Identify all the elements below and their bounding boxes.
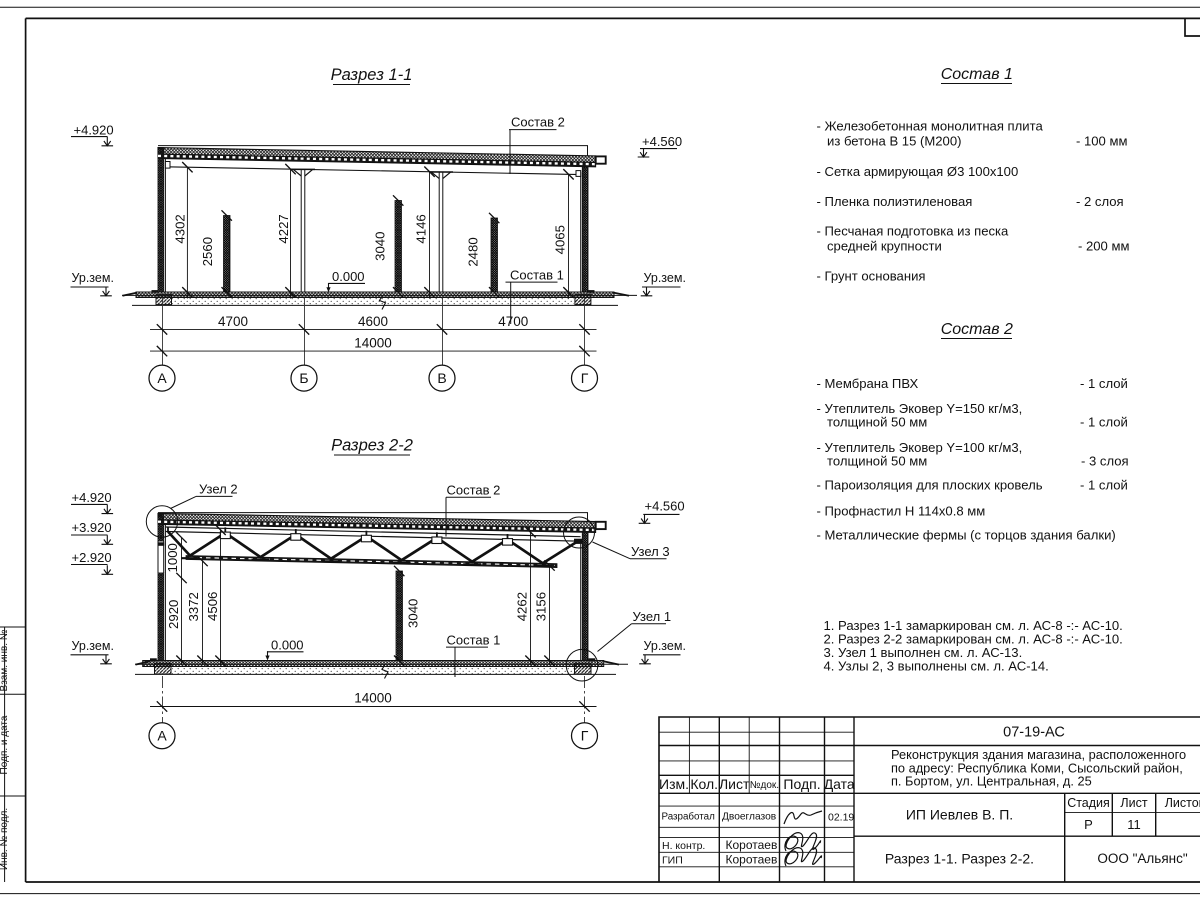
svg-text:- 1 слой: - 1 слой: [1080, 478, 1128, 493]
svg-text:0.000: 0.000: [332, 269, 365, 284]
svg-text:4700: 4700: [218, 314, 248, 329]
svg-text:+4.920: +4.920: [74, 122, 114, 137]
svg-text:3372: 3372: [186, 592, 201, 621]
svg-text:В: В: [437, 370, 446, 386]
svg-text:Изм.: Изм.: [659, 776, 689, 792]
svg-text:4. Узлы 2, 3 выполнены см. л.: 4. Узлы 2, 3 выполнены см. л. АС-14.: [824, 659, 1049, 674]
svg-text:2920: 2920: [166, 600, 181, 629]
svg-text:Состав 2: Состав 2: [447, 482, 501, 497]
svg-text:- Грунт основания: - Грунт основания: [817, 269, 926, 284]
svg-text:14000: 14000: [354, 691, 392, 706]
svg-text:Разрез 1-1. Разрез 2-2.: Разрез 1-1. Разрез 2-2.: [885, 851, 1034, 867]
svg-text:Листов: Листов: [1165, 796, 1200, 810]
svg-text:Состав 1: Состав 1: [510, 267, 564, 282]
svg-text:Состав 1: Состав 1: [941, 66, 1013, 83]
svg-text:- Сетка армирующая Ø3 100х100: - Сетка армирующая Ø3 100х100: [817, 164, 1019, 179]
svg-text:4700: 4700: [498, 314, 528, 329]
svg-text:Подп.: Подп.: [783, 776, 820, 792]
svg-text:Р: Р: [1084, 817, 1093, 832]
svg-text:4600: 4600: [358, 314, 388, 329]
svg-text:+4.920: +4.920: [72, 490, 112, 505]
svg-text:Разрез 2-2: Разрез 2-2: [331, 437, 413, 455]
svg-text:толщиной 50 мм: толщиной 50 мм: [827, 454, 927, 469]
svg-text:- Мембрана ПВХ: - Мембрана ПВХ: [817, 376, 919, 391]
svg-text:Узел 2: Узел 2: [199, 482, 238, 497]
svg-text:ООО "Альянс": ООО "Альянс": [1097, 851, 1187, 866]
svg-text:А: А: [157, 370, 167, 386]
svg-text:- 2 слоя: - 2 слоя: [1076, 194, 1124, 209]
svg-text:Ур.зем.: Ур.зем.: [72, 639, 114, 653]
svg-text:Подп. и дата: Подп. и дата: [0, 715, 10, 774]
svg-text:Состав 2: Состав 2: [941, 321, 1013, 338]
svg-text:Двоеглазов: Двоеглазов: [722, 812, 776, 823]
svg-text:- Пленка полиэтиленовая: - Пленка полиэтиленовая: [817, 194, 973, 209]
svg-text:- 1 слой: - 1 слой: [1080, 415, 1128, 430]
svg-text:2560: 2560: [200, 237, 215, 266]
svg-text:- 3 слоя: - 3 слоя: [1081, 454, 1129, 469]
svg-text:1000: 1000: [165, 543, 180, 572]
svg-text:4227: 4227: [276, 214, 291, 243]
svg-text:Состав 2: Состав 2: [511, 115, 565, 130]
svg-text:Кол.: Кол.: [690, 776, 718, 792]
svg-text:Ур.зем.: Ур.зем.: [72, 271, 114, 285]
svg-text:Б: Б: [299, 370, 308, 386]
svg-text:Стадия: Стадия: [1067, 796, 1110, 810]
svg-text:Лист: Лист: [719, 776, 750, 792]
svg-text:- Песчаная подготовка из песка: - Песчаная подготовка из песка: [817, 224, 1010, 239]
svg-text:4262: 4262: [514, 592, 529, 621]
svg-text:средней крупности: средней крупности: [827, 239, 942, 254]
svg-text:толщиной 50 мм: толщиной 50 мм: [827, 415, 927, 430]
svg-text:п. Бортом, ул. Центральная, д.: п. Бортом, ул. Центральная, д. 25: [891, 774, 1092, 789]
svg-text:- 1 слой: - 1 слой: [1080, 376, 1128, 391]
svg-text:- Железобетонная монолитная п: - Железобетонная монолитная плита: [817, 119, 1044, 134]
svg-text:Г: Г: [581, 728, 589, 744]
svg-text:+4.560: +4.560: [645, 498, 685, 513]
svg-text:Ур.зем.: Ур.зем.: [644, 271, 686, 285]
svg-text:+3.920: +3.920: [72, 520, 112, 535]
svg-text:3040: 3040: [372, 232, 387, 261]
svg-text:4302: 4302: [173, 214, 188, 243]
svg-text:ГИП: ГИП: [662, 855, 683, 867]
svg-text:Состав 1: Состав 1: [447, 632, 501, 647]
svg-text:из бетона В 15 (М200): из бетона В 15 (М200): [827, 134, 962, 149]
svg-text:11: 11: [1127, 817, 1141, 832]
svg-text:+2.920: +2.920: [72, 550, 112, 565]
svg-text:Узел 1: Узел 1: [633, 609, 672, 624]
svg-text:Взам. инв. №: Взам. инв. №: [0, 629, 10, 691]
svg-text:+4.560: +4.560: [642, 134, 682, 149]
svg-text:- 200 мм: - 200 мм: [1078, 239, 1130, 254]
svg-text:Узел 3: Узел 3: [631, 544, 670, 559]
svg-text:Лист: Лист: [1120, 796, 1147, 810]
svg-text:Коротаев: Коротаев: [726, 838, 778, 852]
svg-text:- Металлические фермы (с торцо: - Металлические фермы (с торцов здания б…: [817, 528, 1116, 543]
svg-text:Коротаев: Коротаев: [726, 853, 778, 867]
svg-text:4506: 4506: [205, 592, 220, 621]
svg-text:Ур.зем.: Ур.зем.: [644, 639, 686, 653]
svg-text:- 100 мм: - 100 мм: [1076, 134, 1128, 149]
svg-text:Н. контр.: Н. контр.: [662, 840, 705, 852]
svg-text:Дата: Дата: [824, 776, 855, 792]
svg-text:Разрез 1-1: Разрез 1-1: [331, 66, 413, 84]
svg-text:Г: Г: [581, 370, 589, 386]
svg-text:02.19: 02.19: [828, 812, 854, 824]
svg-text:2480: 2480: [466, 237, 481, 266]
svg-text:3156: 3156: [533, 592, 548, 621]
svg-text:Инв. № подл.: Инв. № подл.: [0, 808, 10, 870]
svg-text:4146: 4146: [414, 214, 429, 243]
svg-text:- Профнастил Н 114х0.8 мм: - Профнастил Н 114х0.8 мм: [817, 504, 986, 519]
svg-text:07-19-АС: 07-19-АС: [1003, 725, 1065, 741]
svg-text:- Пароизоляция для плоских кро: - Пароизоляция для плоских кровель: [817, 478, 1043, 493]
svg-text:Разработал: Разработал: [662, 812, 716, 823]
svg-text:0.000: 0.000: [271, 638, 304, 653]
svg-text:3040: 3040: [405, 599, 420, 628]
svg-text:14000: 14000: [354, 336, 392, 351]
svg-text:№док.: №док.: [750, 780, 779, 791]
svg-text:ИП Иевлев В. П.: ИП Иевлев В. П.: [906, 807, 1013, 823]
svg-text:А: А: [157, 728, 167, 744]
svg-text:4065: 4065: [552, 225, 567, 254]
